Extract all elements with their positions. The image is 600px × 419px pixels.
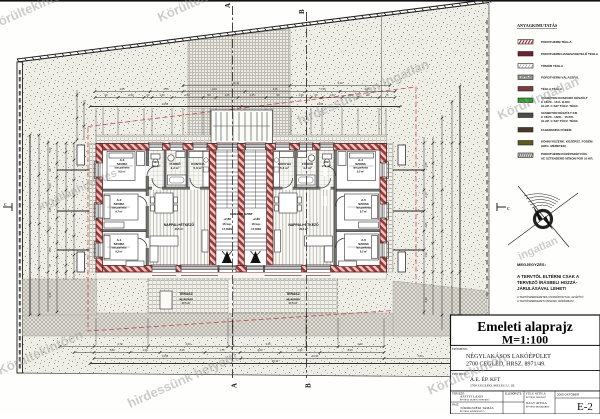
svg-text:FAGERENDA FÖDÉM: FAGERENDA FÖDÉM <box>541 127 572 132</box>
svg-text:lam.parketta: lam.parketta <box>112 207 127 210</box>
svg-text:2,55: 2,55 <box>163 87 169 91</box>
svg-text:ELLENŐRIZTE:: ELLENŐRIZTE: <box>505 393 522 396</box>
svg-text:lam.parketta: lam.parketta <box>353 167 368 170</box>
svg-text:M=1:100: M=1:100 <box>502 333 548 347</box>
svg-text:2,70: 2,70 <box>424 192 428 198</box>
svg-text:FÜLE ATTILA: FÜLE ATTILA <box>526 391 546 396</box>
svg-text:ASZTYI LAJOS: ASZTYI LAJOS <box>460 395 483 399</box>
svg-text:17,5 m²: 17,5 m² <box>289 301 298 305</box>
svg-text:ÉPÍTMÉNY:: ÉPÍTMÉNY: <box>452 346 468 351</box>
svg-text:SZOBA: SZOBA <box>114 202 126 206</box>
svg-text:agyagtegla: agyagtegla <box>179 297 193 301</box>
svg-text:2,55: 2,55 <box>424 222 428 228</box>
svg-text:14,55: 14,55 <box>162 354 169 358</box>
svg-text:2,1 m²: 2,1 m² <box>322 164 331 168</box>
svg-text:4,2 m²: 4,2 m² <box>303 166 312 170</box>
svg-text:4,05: 4,05 <box>272 87 278 91</box>
svg-text:2005 OKTÓBER: 2005 OKTÓBER <box>557 392 580 397</box>
svg-text:1,50: 1,50 <box>159 93 165 97</box>
svg-text:26,5 m²: 26,5 m² <box>175 227 184 231</box>
svg-text:16 lep.: 16 lep. <box>251 222 261 226</box>
svg-text:1,50: 1,50 <box>184 93 190 97</box>
svg-text:c: c <box>507 206 510 212</box>
svg-text:2,55: 2,55 <box>320 87 326 91</box>
svg-text:1,50: 1,50 <box>48 183 52 189</box>
svg-text:ALAP. C S37 TÖC2. TÉGK.: ALAP. C S37 TÖC2. TÉGK. <box>541 103 579 108</box>
svg-text:SZOBA: SZOBA <box>114 242 126 246</box>
svg-text:2,1 m²: 2,1 m² <box>152 164 161 168</box>
svg-text:1,50: 1,50 <box>48 247 52 253</box>
svg-text:ÉPÍTÉSZ TERVEZŐ: ÉPÍTÉSZ TERVEZŐ <box>526 396 546 399</box>
svg-text:NAPPALI+ÉTKEZŐ: NAPPALI+ÉTKEZŐ <box>288 222 319 227</box>
svg-text:+2,88: +2,88 <box>252 217 260 221</box>
svg-text:9,5 m²: 9,5 m² <box>357 169 364 173</box>
svg-text:2,40: 2,40 <box>424 297 428 303</box>
svg-text:1,50: 1,50 <box>128 93 134 97</box>
svg-text:1,50: 1,50 <box>142 348 148 352</box>
svg-text:lam.parketta: lam.parketta <box>356 247 371 250</box>
svg-text:10,43: 10,43 <box>233 81 240 85</box>
svg-text:4,10: 4,10 <box>48 292 52 298</box>
svg-text:ÉPÍTÉSZ MUNKATÁRS: ÉPÍTÉSZ MUNKATÁRS <box>526 406 550 409</box>
svg-text:9,2 m²: 9,2 m² <box>115 249 122 253</box>
svg-text:TÖRÖKSZÉKI TAMÁS: TÖRÖKSZÉKI TAMÁS <box>460 405 494 410</box>
svg-text:lam.parketta: lam.parketta <box>356 207 371 210</box>
svg-text:9,12: 9,12 <box>337 81 343 85</box>
svg-text:A: A <box>231 383 239 388</box>
svg-text:MEGJEGYZÉS:: MEGJEGYZÉS: <box>517 262 546 267</box>
svg-text:2,00: 2,00 <box>257 348 263 352</box>
svg-text:4,05: 4,05 <box>119 87 125 91</box>
svg-text:9,7 m²: 9,7 m² <box>360 209 367 213</box>
svg-text:9,5 m²: 9,5 m² <box>118 169 125 173</box>
svg-text:9,7 m²: 9,7 m² <box>115 209 122 213</box>
svg-text:c: c <box>4 202 7 208</box>
svg-text:ÉPÍTÉSZ VEZETŐ TERVEZŐ: ÉPÍTÉSZ VEZETŐ TERVEZŐ <box>460 399 490 402</box>
svg-text:SZOBA: SZOBA <box>358 202 370 206</box>
svg-text:POROTHERM TÉGLA: POROTHERM TÉGLA <box>541 39 572 44</box>
svg-text:17,5 m²: 17,5 m² <box>182 301 191 305</box>
svg-text:(HRG. MÉRETEK): (HRG. MÉRETEK) <box>541 143 566 148</box>
svg-text:1,05: 1,05 <box>224 93 230 97</box>
svg-text:A: A <box>224 3 232 8</box>
svg-text:4,2 m²: 4,2 m² <box>171 166 180 170</box>
svg-text:7,60: 7,60 <box>417 354 423 358</box>
svg-text:POROTHERM HANGSZIGETELŐ TÉGLA: POROTHERM HANGSZIGETELŐ TÉGLA <box>541 51 599 56</box>
svg-text:lam.parketta: lam.parketta <box>112 247 127 250</box>
svg-text:TERASZ: TERASZ <box>286 292 300 296</box>
svg-text:SZOBA: SZOBA <box>355 162 367 166</box>
svg-text:E-2: E-2 <box>577 401 593 413</box>
svg-text:+2,88: +2,88 <box>223 217 231 221</box>
svg-text:2,30: 2,30 <box>357 342 363 346</box>
svg-text:A TERVTŐL ELTÉRNI CSAK A: A TERVTŐL ELTÉRNI CSAK A <box>517 274 580 279</box>
svg-text:lam.parketta: lam.parketta <box>115 167 130 170</box>
svg-text:17,8/29: 17,8/29 <box>251 227 261 231</box>
svg-text:2,25: 2,25 <box>179 348 185 352</box>
svg-text:AE SZTENDERD XÉNON POR 10 KR.: AE SZTENDERD XÉNON POR 10 KR. <box>541 155 594 160</box>
svg-text:9,2 m²: 9,2 m² <box>360 249 367 253</box>
svg-text:5,6 m²: 5,6 m² <box>194 166 203 170</box>
svg-text:TÖMÖR TÉGLA: TÖMÖR TÉGLA <box>541 63 564 68</box>
svg-text:RAJZ:: RAJZ: <box>452 403 459 407</box>
svg-text:TERVEZŐ ÍRÁSBELI HOZZÁ-: TERVEZŐ ÍRÁSBELI HOZZÁ- <box>517 280 578 285</box>
svg-text:NAPPALI+ÉTKEZŐ: NAPPALI+ÉTKEZŐ <box>164 222 195 227</box>
svg-text:B: B <box>305 383 313 388</box>
svg-text:1,75: 1,75 <box>219 348 225 352</box>
svg-text:EMELETI SZINT: EMELETI SZINT <box>230 212 253 216</box>
svg-text:4,00: 4,00 <box>185 342 191 346</box>
svg-text:1,50: 1,50 <box>48 147 52 153</box>
svg-text:29,10: 29,10 <box>272 359 279 363</box>
svg-text:2,00: 2,00 <box>297 348 303 352</box>
svg-text:B: B <box>298 9 306 14</box>
svg-text:1,05: 1,05 <box>249 93 255 97</box>
svg-text:TERASZ: TERASZ <box>179 292 193 296</box>
svg-text:agyagtegla: agyagtegla <box>286 297 300 301</box>
svg-text:ÉPÍTÉSZ SZERKESZTŐ: ÉPÍTÉSZ SZERKESZTŐ <box>460 410 485 413</box>
svg-text:ANYAGKIMUTATÁS: ANYAGKIMUTATÁS <box>517 23 558 28</box>
svg-text:ALAP. C S37 TÖC2. TÉGK.: ALAP. C S37 TÖC2. TÉGK. <box>541 118 579 123</box>
svg-text:2,70: 2,70 <box>117 342 123 346</box>
svg-text:3,20: 3,20 <box>347 348 353 352</box>
svg-text:3,65: 3,65 <box>265 342 271 346</box>
svg-text:1,50: 1,50 <box>424 162 428 168</box>
svg-text:1,80: 1,80 <box>109 348 115 352</box>
svg-text:17,8/29: 17,8/29 <box>222 227 232 231</box>
svg-text:1,50: 1,50 <box>298 93 304 97</box>
svg-text:SZOBA: SZOBA <box>117 162 129 166</box>
svg-text:NÉGYLAKÁSOS LAKÓÉPÜLET: NÉGYLAKÁSOS LAKÓÉPÜLET <box>466 352 551 360</box>
svg-text:16 lep.: 16 lep. <box>222 222 232 226</box>
svg-text:5,6 m²: 5,6 m² <box>280 166 289 170</box>
svg-text:1,50: 1,50 <box>424 252 428 258</box>
svg-text:JÁRULÁSÁVAL LEHET!: JÁRULÁSÁVAL LEHET! <box>517 286 567 291</box>
svg-text:14,30: 14,30 <box>312 354 319 358</box>
svg-text:NAGY ATTILA: NAGY ATTILA <box>526 401 548 405</box>
svg-text:14,55: 14,55 <box>162 102 169 106</box>
svg-text:4,20: 4,20 <box>211 87 217 91</box>
svg-text:SZOBA: SZOBA <box>358 242 370 246</box>
